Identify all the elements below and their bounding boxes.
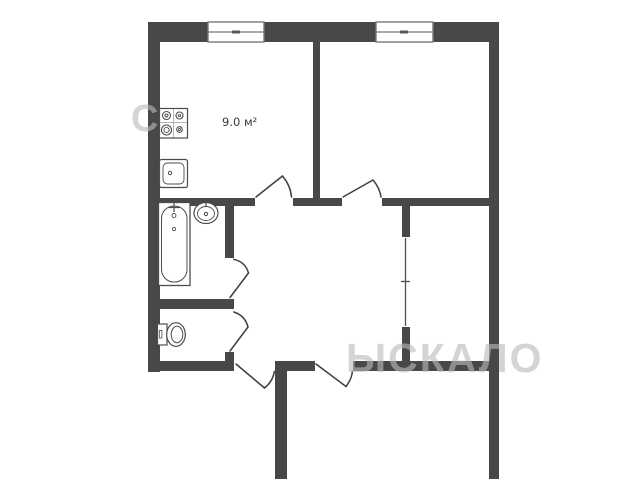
doorway-opening-line xyxy=(401,238,410,326)
wall-segment xyxy=(275,361,287,479)
window-living-room xyxy=(376,22,433,42)
wall-segment xyxy=(264,22,376,42)
wall-segment xyxy=(382,198,489,206)
kitchen-area-label: 9.0 м² xyxy=(222,115,257,129)
wall-segment xyxy=(148,22,208,42)
door-bathroom xyxy=(230,259,249,297)
wall-segment xyxy=(313,42,320,198)
stove-icon xyxy=(160,109,188,139)
door-kitchen xyxy=(256,176,292,197)
wall-segment xyxy=(148,361,234,371)
floor-plan-drawing: 9.0 м² xyxy=(0,0,631,480)
floor-plan: 9.0 м² С ЫСКАЛО xyxy=(0,0,631,480)
wall-segment xyxy=(160,299,234,309)
door-wc xyxy=(230,312,248,351)
toilet-icon xyxy=(158,323,186,347)
kitchen-sink-icon xyxy=(160,160,188,188)
bathtub-icon xyxy=(159,203,191,286)
wall-segment xyxy=(402,327,410,361)
wall-segment xyxy=(293,198,342,206)
washbasin-icon xyxy=(194,203,218,224)
wall-segment xyxy=(433,22,499,42)
wall-segment xyxy=(353,361,489,371)
wall-segment xyxy=(489,42,499,479)
wall-segment xyxy=(275,361,315,371)
outer-walls xyxy=(148,22,499,479)
door-living-room xyxy=(343,180,381,197)
wall-segment xyxy=(402,206,410,237)
door-hall-to-corridor xyxy=(316,364,352,387)
door-entrance xyxy=(236,364,274,388)
window-kitchen xyxy=(208,22,264,42)
wall-segment xyxy=(225,352,234,361)
wall-segment xyxy=(225,206,234,258)
